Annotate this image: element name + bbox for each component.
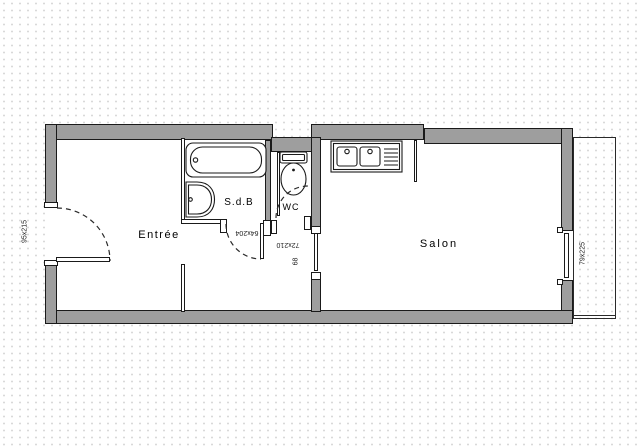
window-glazing bbox=[564, 233, 569, 278]
wall-salon-left-upper bbox=[311, 137, 321, 234]
wall-kitchen-stub bbox=[414, 140, 417, 182]
wall-top-salon-right bbox=[424, 128, 573, 144]
floor-entree-area bbox=[45, 124, 274, 324]
wall-left-lower bbox=[45, 261, 57, 324]
wall-entree-stub bbox=[181, 264, 185, 312]
wall-right-upper bbox=[561, 128, 573, 231]
wc-door-jamb-right bbox=[304, 216, 311, 230]
room-label-salon: Salon bbox=[399, 238, 479, 250]
dimension-entry-door: 95x215 bbox=[22, 207, 29, 257]
room-label-wc: WC bbox=[271, 202, 311, 212]
wall-top-wc-notch bbox=[271, 137, 313, 152]
window-jamb-top bbox=[557, 227, 563, 233]
wall-top-left bbox=[45, 124, 273, 140]
dimension-wc-door: 68 bbox=[293, 250, 300, 274]
dimension-salon-window: 79x225 bbox=[580, 229, 587, 279]
entry-door-leaf bbox=[56, 257, 110, 262]
balcony-inner-line bbox=[573, 315, 616, 316]
entry-door-jamb-top bbox=[44, 202, 58, 208]
wall-sdb-left bbox=[181, 138, 185, 223]
room-label-sdb: S.d.B bbox=[209, 197, 269, 208]
floor-plan: Entrée S.d.B WC Salon 95x215 64x204 72x2… bbox=[0, 0, 640, 447]
dimension-salon-door: 72x210 bbox=[263, 241, 313, 248]
wall-top-salon-left bbox=[311, 124, 424, 140]
salon-door-jamb-bottom bbox=[311, 272, 321, 280]
window-jamb-bottom bbox=[557, 279, 563, 285]
dimension-sdb-door: 64x204 bbox=[222, 229, 272, 236]
salon-door-leaf bbox=[314, 233, 318, 271]
room-label-entree: Entrée bbox=[119, 229, 199, 241]
wall-bottom bbox=[45, 310, 573, 324]
floor-salon-area bbox=[313, 124, 573, 324]
wall-left-upper bbox=[45, 124, 57, 208]
